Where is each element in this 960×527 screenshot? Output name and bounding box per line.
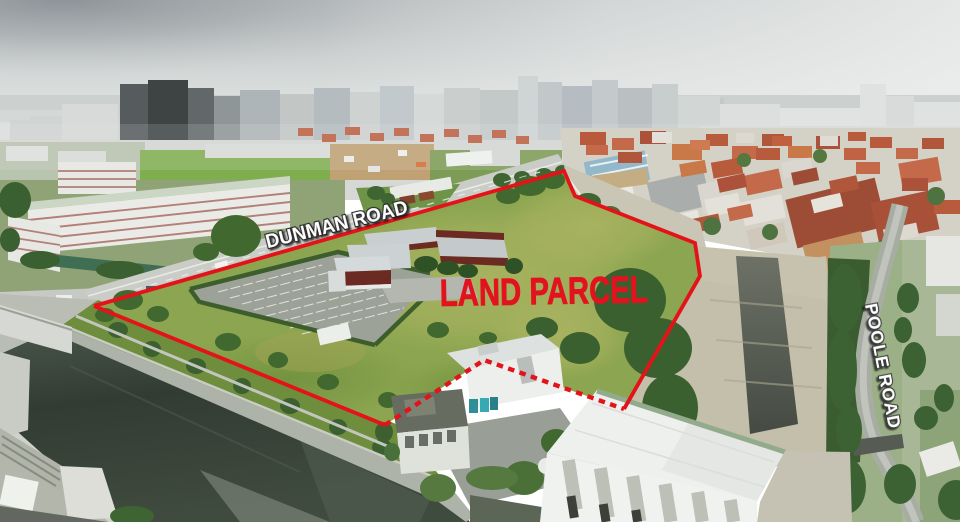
svg-text:LAND PARCEL: LAND PARCEL [439, 269, 648, 315]
